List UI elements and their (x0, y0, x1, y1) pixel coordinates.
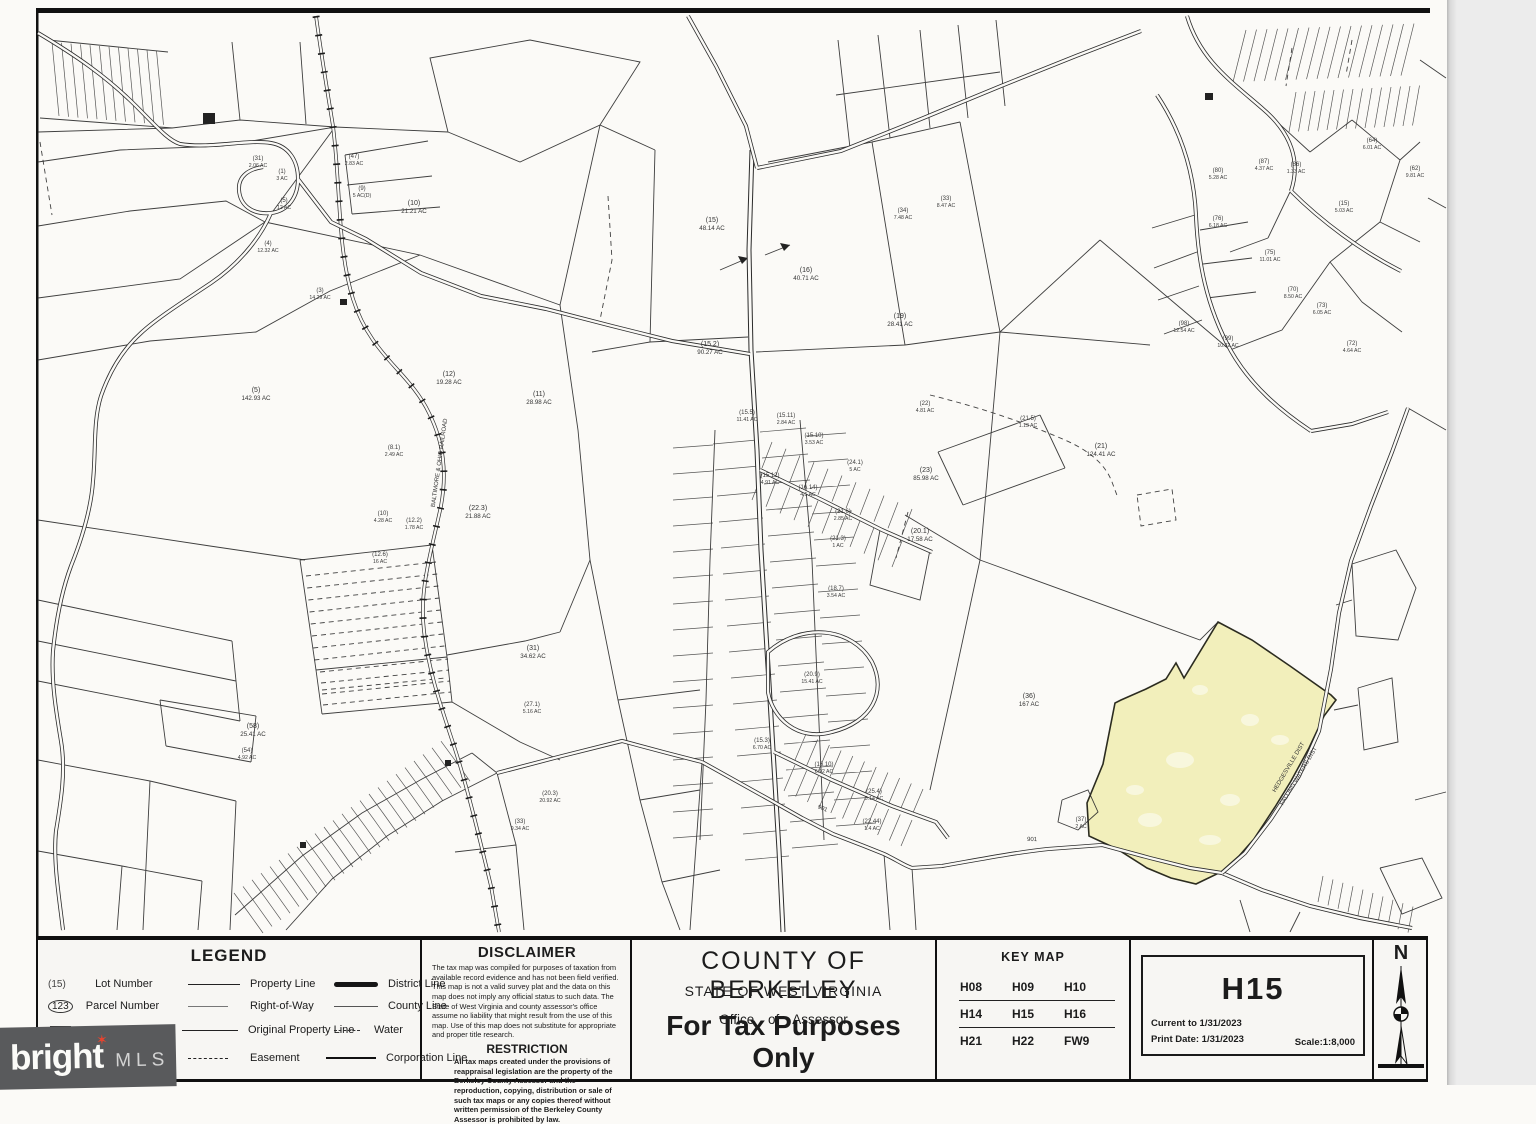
svg-text:(23): (23) (920, 467, 932, 474)
legend-water: Water (334, 1024, 403, 1036)
current-to-date: Current to 1/31/2023 (1151, 1016, 1244, 1032)
svg-text:(15): (15) (1339, 201, 1350, 207)
svg-text:85.98 AC: 85.98 AC (913, 475, 939, 482)
svg-text:2.85 AC: 2.85 AC (834, 516, 853, 522)
state-title: STATE OF WEST VIRGINIA (632, 983, 935, 999)
svg-text:(15.10): (15.10) (804, 433, 823, 439)
svg-text:12.32 AC: 12.32 AC (257, 248, 279, 254)
parcel-label: (20.9)15.41 AC (801, 672, 823, 685)
parcel-label: (22.44)1.4 AC (862, 819, 881, 832)
svg-text:1 AC: 1 AC (832, 543, 843, 549)
svg-text:6.92 AC: 6.92 AC (815, 769, 834, 775)
svg-text:17.58 AC: 17.58 AC (907, 536, 933, 543)
corporation-line-sample (326, 1057, 376, 1059)
restriction-body: All tax maps created under the provision… (454, 1057, 616, 1124)
county-line-sample (334, 1006, 378, 1007)
svg-text:6.05 AC: 6.05 AC (1313, 310, 1332, 316)
svg-text:25.41 AC: 25.41 AC (240, 731, 266, 738)
svg-text:1.33 AC: 1.33 AC (1287, 169, 1306, 175)
legend-property-line: Property Line (188, 978, 315, 990)
disclaimer-section: DISCLAIMER The tax map was compiled for … (422, 940, 632, 1079)
svg-text:14.29 AC: 14.29 AC (309, 295, 331, 301)
svg-text:40.71 AC: 40.71 AC (793, 275, 819, 282)
svg-text:(27.1): (27.1) (524, 702, 540, 708)
bright-logo-text: bright✶ (10, 1037, 104, 1079)
svg-text:(24.1): (24.1) (847, 460, 863, 466)
svg-text:(64): (64) (1367, 138, 1378, 144)
svg-text:(9): (9) (358, 186, 365, 192)
water-line-sample (334, 1030, 360, 1031)
svg-text:12.54 AC: 12.54 AC (1173, 328, 1195, 334)
easement-sample (188, 1058, 228, 1059)
svg-text:(37): (37) (1076, 817, 1087, 823)
svg-text:5.28 AC: 5.28 AC (1209, 175, 1228, 181)
right-of-way-sample (188, 1006, 228, 1007)
svg-text:124.41 AC: 124.41 AC (1087, 451, 1116, 458)
north-label: N (1374, 942, 1428, 965)
svg-text:5 AC: 5 AC (849, 467, 860, 473)
svg-text:(72): (72) (1347, 341, 1358, 347)
key-map-row: H08 H09 H10 (959, 974, 1115, 1001)
svg-text:167 AC: 167 AC (1019, 701, 1040, 708)
svg-text:90.27 AC: 90.27 AC (697, 349, 723, 356)
svg-text:(16): (16) (800, 267, 812, 274)
svg-text:8.50 AC: 8.50 AC (1284, 294, 1303, 300)
svg-text:19.28 AC: 19.28 AC (436, 379, 462, 386)
parcel-label: (12.6)16 AC (372, 552, 388, 565)
svg-text:4.28 AC: 4.28 AC (374, 518, 393, 524)
title-block-section: COUNTY OF BERKELEY STATE OF WEST VIRGINI… (632, 940, 937, 1079)
svg-text:(98): (98) (1179, 321, 1190, 327)
svg-text:(8.1): (8.1) (388, 445, 400, 451)
tax-purposes-note: For Tax Purposes Only (632, 1010, 935, 1074)
svg-text:1.13 AC: 1.13 AC (1019, 423, 1038, 429)
svg-text:(10): (10) (408, 200, 420, 207)
sheet-id: H15 (1143, 971, 1363, 1007)
svg-text:(73): (73) (1317, 303, 1328, 309)
legend-original-property-line: Original Property Line (182, 1024, 354, 1036)
svg-text:(15.11): (15.11) (777, 413, 796, 419)
parcel-label: (18.7)3.54 AC (827, 586, 846, 599)
svg-text:20.92 AC: 20.92 AC (539, 798, 561, 804)
svg-text:(21): (21) (1095, 443, 1107, 450)
map-paper (0, 0, 1447, 1085)
svg-text:10.32 AC: 10.32 AC (1217, 343, 1239, 349)
parcel-label: (16.10)6.92 AC (814, 762, 833, 775)
svg-text:8.47 AC: 8.47 AC (937, 203, 956, 209)
key-map-grid: H08 H09 H10 H14 H15 H16 H21 H22 FW9 (959, 974, 1115, 1054)
parcel-label: (12.2)1.78 AC (405, 518, 424, 531)
parcel-label: (20.3)20.92 AC (539, 791, 561, 804)
svg-text:(22.3): (22.3) (469, 505, 487, 512)
svg-text:(19): (19) (894, 313, 906, 320)
map-footer-band: LEGEND (15) Lot Number 123 Parcel Number… (36, 936, 1428, 1082)
svg-text:(3): (3) (316, 288, 323, 294)
parcel-label: (16.14)4.5 AC (798, 485, 817, 498)
svg-text:4.92 AC: 4.92 AC (238, 755, 257, 761)
svg-text:(21.3): (21.3) (830, 536, 846, 542)
key-map-cell: FW9 (1063, 1028, 1115, 1055)
svg-text:4.91 AC: 4.91 AC (761, 480, 780, 486)
svg-text:(15): (15) (706, 217, 718, 224)
svg-text:7.48 AC: 7.48 AC (894, 215, 913, 221)
svg-text:12 AC: 12 AC (277, 205, 291, 211)
svg-text:(16.14): (16.14) (798, 485, 817, 491)
north-arrow-section: N (1374, 940, 1428, 1079)
parcel-label: (27.1)5.16 AC (523, 702, 542, 715)
parcel-label: (24.1)5 AC (847, 460, 863, 473)
svg-text:(15.3): (15.3) (754, 738, 770, 744)
lot-number-symbol: (15) (48, 979, 78, 990)
svg-text:9.81 AC: 9.81 AC (1406, 173, 1425, 179)
parcel-label: (21.3)1 AC (830, 536, 846, 549)
svg-text:4.5 AC: 4.5 AC (800, 492, 816, 498)
legend-right-of-way: Right-of-Way (188, 1000, 314, 1012)
original-property-line-sample (182, 1030, 238, 1031)
tax-map-canvas: (31)2.06 AC(1)3 AC(5)12 AC(4)12.32 AC(3)… (0, 0, 1536, 1085)
parcel-label: (15.11)2.84 AC (777, 413, 796, 426)
svg-text:1.4 AC: 1.4 AC (864, 826, 880, 832)
svg-text:6.01 AC: 6.01 AC (1363, 145, 1382, 151)
key-map-cell-current: H15 (1011, 1001, 1063, 1028)
parcel-label: (15.12)4.91 AC (760, 473, 779, 486)
sheet-id-box: H15 Current to 1/31/2023 Print Date: 1/3… (1141, 955, 1365, 1056)
svg-text:(62): (62) (1410, 166, 1421, 172)
parcel-label: (21.5)1.13 AC (1019, 416, 1038, 429)
svg-text:(10): (10) (378, 511, 389, 517)
svg-text:(21.5): (21.5) (1020, 416, 1036, 422)
svg-text:4.81 AC: 4.81 AC (916, 408, 935, 414)
key-map-section: KEY MAP H08 H09 H10 H14 H15 H16 H21 H22 … (937, 940, 1131, 1079)
svg-text:2.06 AC: 2.06 AC (249, 163, 268, 169)
print-date: Print Date: 1/31/2023 (1151, 1032, 1244, 1048)
svg-text:6.18 AC: 6.18 AC (1209, 223, 1228, 229)
property-line-sample (188, 984, 240, 985)
svg-text:(12.6): (12.6) (372, 552, 388, 558)
svg-text:1.78 AC: 1.78 AC (405, 525, 424, 531)
legend-easement: Easement (188, 1052, 300, 1064)
svg-text:15.41 AC: 15.41 AC (801, 679, 823, 685)
key-map-cell: H14 (959, 1001, 1011, 1028)
svg-text:(31): (31) (253, 156, 264, 162)
svg-text:(99): (99) (1223, 336, 1234, 342)
parcel-label: (15.3)6.70 AC (753, 738, 772, 751)
parcel-label: (15.5)11.41 AC (737, 410, 758, 423)
svg-text:5.03 AC: 5.03 AC (1335, 208, 1354, 214)
svg-text:(80): (80) (1213, 168, 1224, 174)
parcel-label: (15.10)3.53 AC (804, 433, 823, 446)
svg-text:4.64 AC: 4.64 AC (1343, 348, 1362, 354)
svg-text:(16.10): (16.10) (814, 762, 833, 768)
svg-text:5.16 AC: 5.16 AC (523, 709, 542, 715)
svg-text:2.84 AC: 2.84 AC (777, 420, 796, 426)
bright-star-icon: ✶ (96, 1033, 107, 1049)
svg-text:(87): (87) (1259, 159, 1270, 165)
svg-text:(12): (12) (443, 371, 455, 378)
scan-margin (1447, 0, 1536, 1085)
north-base-bar (1378, 1064, 1424, 1068)
district-line-sample (334, 982, 378, 987)
svg-text:(58): (58) (247, 723, 259, 730)
svg-text:9.34 AC: 9.34 AC (511, 826, 530, 832)
disclaimer-body: The tax map was compiled for purposes of… (432, 963, 622, 1040)
svg-text:21.21 AC: 21.21 AC (401, 208, 427, 215)
mls-logo-text: MLS (115, 1049, 170, 1072)
svg-text:2.49 AC: 2.49 AC (385, 452, 404, 458)
brightmls-watermark: bright✶ MLS (0, 1024, 177, 1090)
svg-text:(15.12): (15.12) (760, 473, 779, 479)
svg-text:(20.3): (20.3) (542, 791, 558, 797)
svg-text:34.62 AC: 34.62 AC (520, 653, 546, 660)
svg-text:(1): (1) (278, 169, 285, 175)
legend-title: LEGEND (38, 946, 420, 966)
svg-text:8.14 AC: 8.14 AC (865, 796, 884, 802)
key-map-row: H21 H22 FW9 (959, 1028, 1115, 1055)
svg-text:28.41 AC: 28.41 AC (887, 321, 913, 328)
svg-text:(11): (11) (533, 391, 545, 398)
svg-text:(75): (75) (1265, 250, 1276, 256)
svg-text:28.98 AC: 28.98 AC (526, 399, 552, 406)
svg-text:(22): (22) (920, 401, 931, 407)
parcel-number-symbol: 123 (48, 1000, 73, 1013)
key-map-title: KEY MAP (937, 950, 1129, 964)
svg-text:(5): (5) (280, 198, 287, 204)
svg-text:(18.7): (18.7) (828, 586, 844, 592)
svg-text:6.70 AC: 6.70 AC (753, 745, 772, 751)
svg-text:11.01 AC: 11.01 AC (1260, 257, 1281, 263)
parcel-label: (37)2 AC (1075, 817, 1086, 830)
key-map-row: H14 H15 H16 (959, 1001, 1115, 1028)
svg-text:(86): (86) (1291, 162, 1302, 168)
sheet-id-section: H15 Current to 1/31/2023 Print Date: 1/3… (1131, 940, 1374, 1079)
svg-text:(33): (33) (515, 819, 526, 825)
legend-parcel-number: 123 Parcel Number (48, 1000, 159, 1013)
svg-text:(15.2): (15.2) (701, 341, 719, 348)
svg-text:(5): (5) (252, 387, 261, 394)
key-map-cell: H10 (1063, 974, 1115, 1001)
north-arrow-icon (1373, 964, 1429, 1068)
svg-text:3.54 AC: 3.54 AC (827, 593, 846, 599)
svg-text:16 AC: 16 AC (373, 559, 387, 565)
svg-text:(4): (4) (264, 241, 271, 247)
svg-text:48.14 AC: 48.14 AC (699, 225, 725, 232)
svg-text:(20.9): (20.9) (804, 672, 820, 678)
svg-text:(34): (34) (898, 208, 909, 214)
svg-text:(54): (54) (242, 748, 253, 754)
svg-text:2.83 AC: 2.83 AC (345, 161, 364, 167)
key-map-cell: H21 (959, 1028, 1011, 1055)
svg-text:3 AC: 3 AC (276, 176, 287, 182)
svg-text:4.37 AC: 4.37 AC (1255, 166, 1274, 172)
svg-text:5 AC(D): 5 AC(D) (353, 193, 372, 199)
svg-text:(36): (36) (1023, 693, 1035, 700)
svg-text:(70): (70) (1288, 287, 1299, 293)
svg-text:(25.4): (25.4) (866, 789, 882, 795)
svg-text:2 AC: 2 AC (1075, 824, 1086, 830)
road-label: 901 (1027, 837, 1038, 843)
sheet-dates: Current to 1/31/2023 Print Date: 1/31/20… (1151, 1016, 1244, 1048)
disclaimer-title: DISCLAIMER (432, 944, 622, 961)
svg-text:(47): (47) (349, 154, 360, 160)
svg-text:(31): (31) (527, 645, 539, 652)
map-scale: Scale:1:8,000 (1295, 1037, 1355, 1048)
key-map-cell: H22 (1011, 1028, 1063, 1055)
svg-text:142.93 AC: 142.93 AC (242, 395, 271, 402)
svg-text:(33): (33) (941, 196, 952, 202)
key-map-cell: H09 (1011, 974, 1063, 1001)
svg-text:3.53 AC: 3.53 AC (805, 440, 824, 446)
legend-lot-number: (15) Lot Number (48, 978, 153, 990)
svg-text:(76): (76) (1213, 216, 1224, 222)
svg-text:11.41 AC: 11.41 AC (737, 417, 758, 423)
key-map-cell: H08 (959, 974, 1011, 1001)
svg-text:(15.5): (15.5) (739, 410, 755, 416)
svg-text:(21.6): (21.6) (835, 509, 851, 515)
restriction-title: RESTRICTION (432, 1042, 622, 1056)
parcel-label: (25.4)8.14 AC (865, 789, 884, 802)
svg-text:(20.1): (20.1) (911, 528, 929, 535)
key-map-cell: H16 (1063, 1001, 1115, 1028)
svg-text:21.88 AC: 21.88 AC (465, 513, 491, 520)
svg-text:(12.2): (12.2) (406, 518, 422, 524)
parcel-label: (21.6)2.85 AC (834, 509, 853, 522)
svg-text:(22.44): (22.44) (862, 819, 881, 825)
